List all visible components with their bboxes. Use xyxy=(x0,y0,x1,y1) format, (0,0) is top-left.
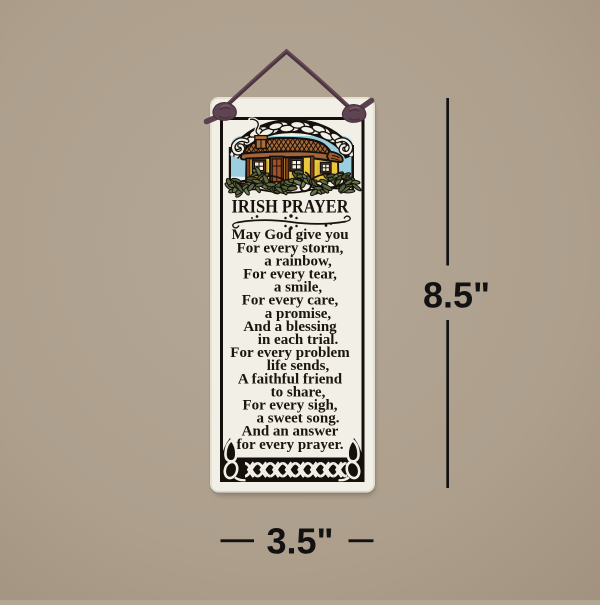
svg-text:IRISH PRAYER: IRISH PRAYER xyxy=(232,197,349,218)
svg-text:for every prayer.: for every prayer. xyxy=(236,437,343,453)
svg-text:3.5": 3.5" xyxy=(266,520,333,561)
svg-text:8.5": 8.5" xyxy=(423,275,490,316)
